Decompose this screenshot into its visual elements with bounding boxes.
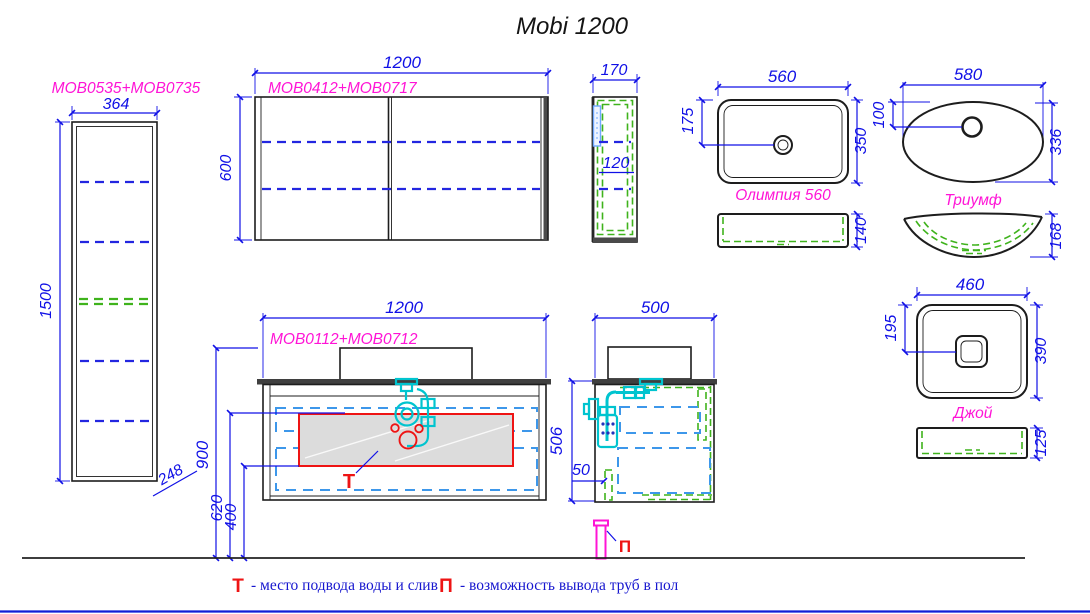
triumf-depth-dim: 336 xyxy=(1048,129,1065,156)
tall-cabinet-width-dim: 364 xyxy=(103,96,130,113)
legend-water-symbol: Т xyxy=(232,576,244,597)
mirror-width-dim: 1200 xyxy=(383,53,421,72)
joy-label: Джой xyxy=(952,405,993,422)
mirror-shelf-spacing-dim: 120 xyxy=(603,155,630,172)
tall-cabinet-shelves xyxy=(79,182,150,421)
vanity-basin-side xyxy=(608,347,691,379)
floor-pipe xyxy=(594,521,608,559)
legend-pipe-text: - возможность вывода труб в пол xyxy=(460,577,679,594)
tall-cabinet-label: MOB0535+MOB0735 xyxy=(52,80,201,97)
triumf-height-dim: 168 xyxy=(1048,223,1065,250)
mirror-side-panel-edge xyxy=(544,98,548,239)
triumf-width-dim: 580 xyxy=(954,65,983,84)
vanity-front-view: 1200 MOB0112+MOB0712 xyxy=(193,298,595,558)
joy-width-dim: 460 xyxy=(956,275,985,294)
tall-cabinet-depth-dim: 248 xyxy=(154,461,186,489)
legend: Т - место подвода воды и слив П - возмож… xyxy=(232,576,678,597)
mirror-side-depth-dim: 170 xyxy=(601,62,628,79)
tall-cabinet-view: MOB0535+MOB0735 364 1500 248 xyxy=(38,80,201,496)
olimpia-label: Олимпия 560 xyxy=(735,187,831,204)
olimpia-width-dim: 560 xyxy=(768,67,797,86)
joy-drain-offset-dim: 195 xyxy=(883,315,900,342)
technical-drawing: Mobi 1200 MOB0535+MOB0735 364 1500 248 1… xyxy=(0,0,1090,614)
tall-cabinet-height-dim: 1500 xyxy=(38,283,55,319)
vanity-side-drawer-outlines xyxy=(618,407,710,493)
triumf-drain-offset-dim: 100 xyxy=(871,102,888,129)
vanity-body-side xyxy=(595,385,714,503)
water-mark-t: Т xyxy=(343,471,355,493)
triumf-side-view xyxy=(904,213,1042,257)
mirror-cabinet-label: MOB0412+MOB0717 xyxy=(268,80,418,97)
drawing-page: Mobi 1200 MOB0535+MOB0735 364 1500 248 1… xyxy=(0,0,1090,614)
joy-height-dim: 125 xyxy=(1033,430,1050,457)
vanity-side-view: 500 xyxy=(572,298,717,559)
legend-pipe-symbol: П xyxy=(439,576,453,597)
mirror-cabinet-side-view: 170 120 xyxy=(592,62,638,242)
vanity-basin-front xyxy=(340,348,472,380)
mirror-cabinet-body xyxy=(255,97,548,240)
supply-zone-bottom-dim: 400 xyxy=(223,504,240,531)
legend-water-text: - место подвода воды и слив xyxy=(251,577,438,594)
mirror-cabinet-front-view: 1200 MOB0412+MOB0717 600 xyxy=(218,53,548,240)
vanity-side-depth-dim: 500 xyxy=(641,298,670,317)
olimpia-depth-dim: 350 xyxy=(853,128,870,155)
olimpia-drain xyxy=(774,136,792,154)
triumf-top-view xyxy=(903,102,1043,182)
sink-joy-view: 460 195 390 Джой 125 xyxy=(883,275,1050,458)
vanity-side-hidden-lines xyxy=(605,386,712,500)
drawing-title: Mobi 1200 xyxy=(516,13,629,40)
triumf-drain xyxy=(963,118,982,137)
vanity-width-dim: 1200 xyxy=(385,298,423,317)
vanity-label: MOB0112+MOB0712 xyxy=(270,331,418,348)
mirror-height-dim: 600 xyxy=(218,155,235,182)
water-supply-zone xyxy=(299,414,513,466)
vanity-mount-height-dim: 900 xyxy=(193,440,212,469)
olimpia-drain-offset-dim: 175 xyxy=(680,108,697,135)
tall-cabinet-body xyxy=(72,122,157,481)
mirror-cabinet-shelves xyxy=(262,142,540,189)
olimpia-top-view xyxy=(718,100,848,183)
vanity-body-height-dim: 506 xyxy=(547,426,566,455)
back-gap-dim: 50 xyxy=(572,462,590,479)
olimpia-height-dim: 140 xyxy=(853,217,870,244)
triumf-label: Триумф xyxy=(944,192,1001,209)
sink-triumf-view: 580 100 336 Триумф 168 xyxy=(871,65,1065,257)
joy-depth-dim: 390 xyxy=(1033,338,1050,365)
sink-olimpia-view: 560 175 350 Олимпия 560 140 xyxy=(680,67,870,247)
floor-pipe-mark-p: П xyxy=(619,537,631,556)
